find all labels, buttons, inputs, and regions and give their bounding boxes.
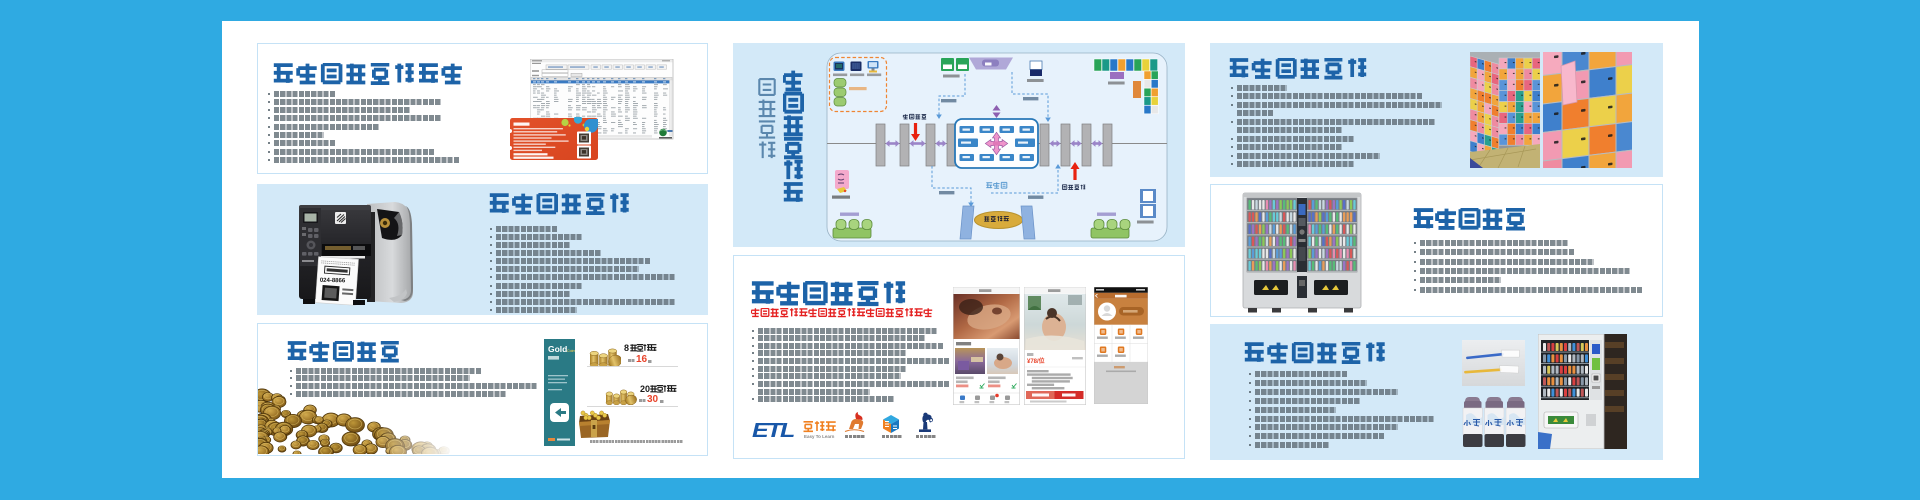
svg-text:024-8866: 024-8866 [320, 278, 346, 284]
svg-text:Gold: Gold [548, 344, 567, 354]
svg-text:Coins: Coins [567, 349, 575, 353]
svg-text:¥78/位: ¥78/位 [1027, 357, 1045, 365]
